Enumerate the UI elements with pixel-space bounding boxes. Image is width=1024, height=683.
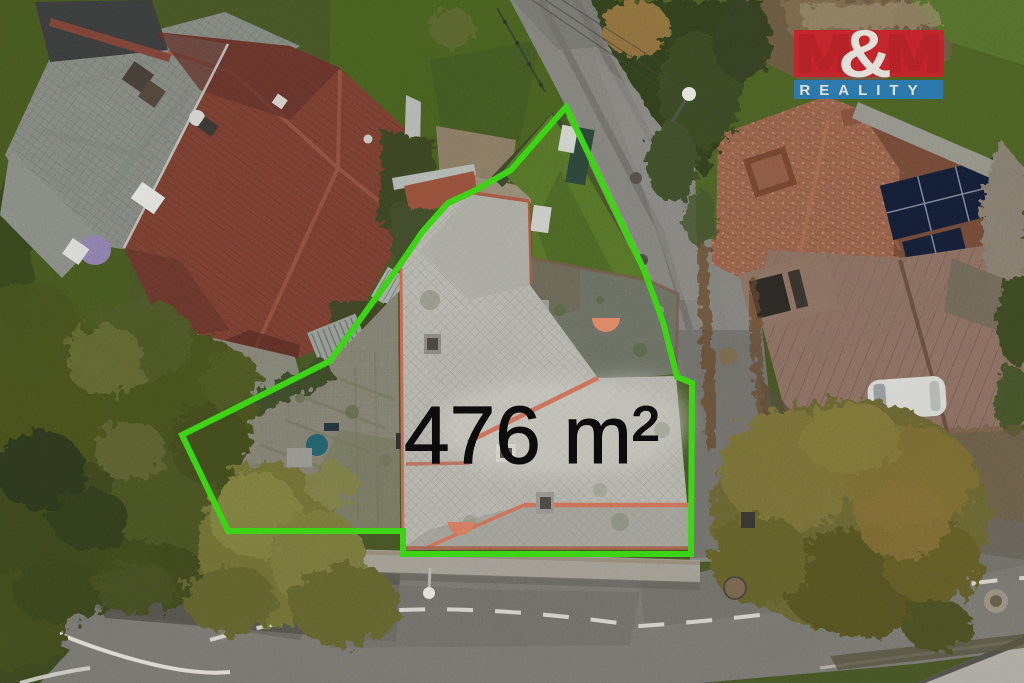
svg-text:REALITY: REALITY xyxy=(799,82,926,99)
svg-text:476 m²: 476 m² xyxy=(404,390,659,481)
